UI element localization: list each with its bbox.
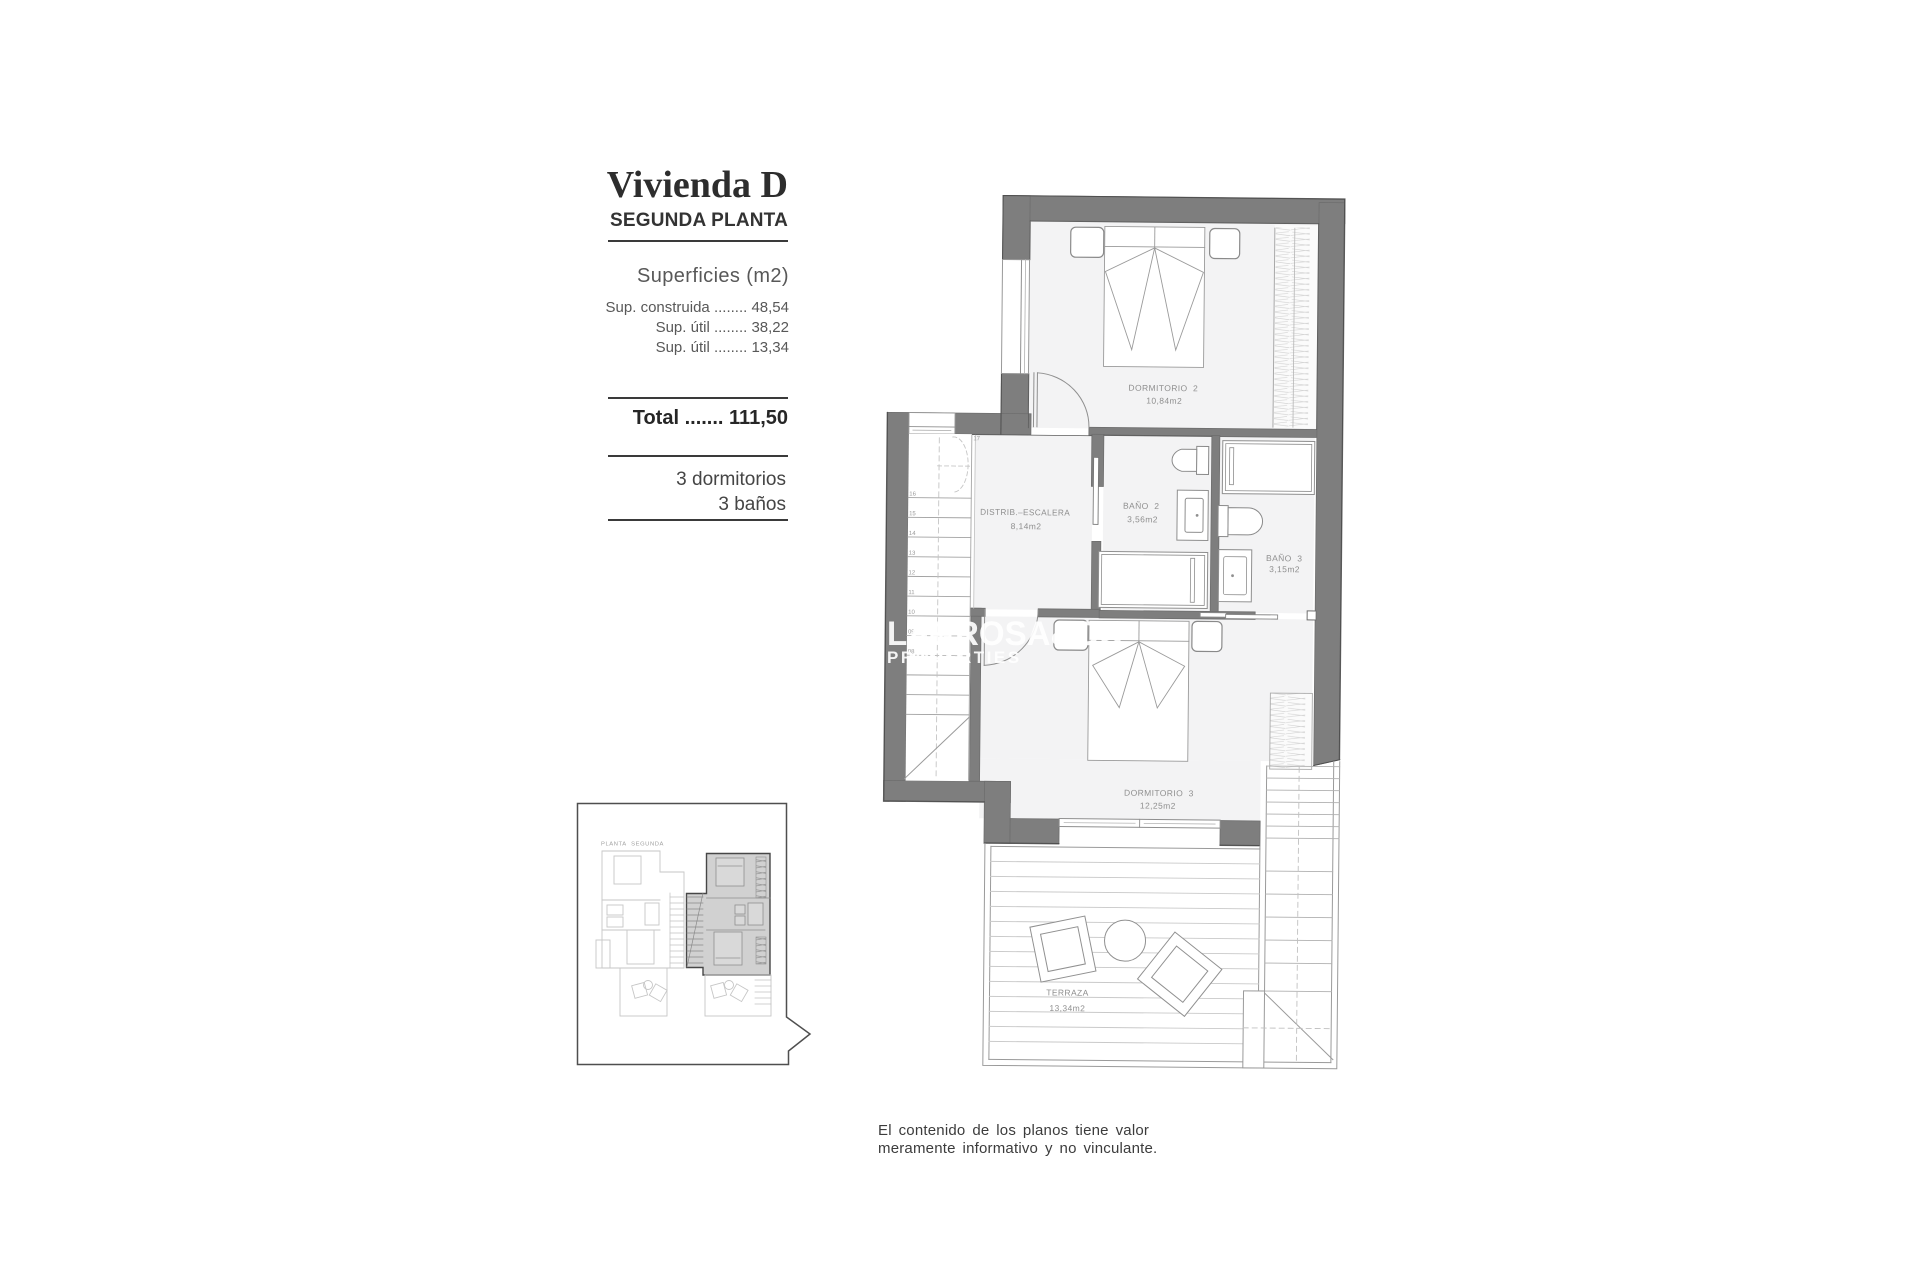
svg-text:8,14m2: 8,14m2 [1011,521,1042,531]
svg-text:10,84m2: 10,84m2 [1146,396,1182,406]
svg-text:11: 11 [908,590,915,596]
svg-text:DORMITORIO 3: DORMITORIO 3 [1124,788,1194,799]
svg-text:3,56m2: 3,56m2 [1127,514,1158,524]
svg-text:PROPERTIES: PROPERTIES [887,648,1022,667]
svg-text:BAÑO 3: BAÑO 3 [1266,553,1302,563]
svg-text:3,15m2: 3,15m2 [1269,564,1300,574]
svg-text:14: 14 [909,531,916,537]
svg-text:15: 15 [909,511,916,517]
svg-text:DISTRIB.–ESCALERA: DISTRIB.–ESCALERA [980,507,1070,518]
svg-text:13: 13 [909,551,916,557]
svg-text:17: 17 [973,436,980,442]
svg-text:TERRAZA: TERRAZA [1046,987,1089,997]
svg-text:DORMITORIO 2: DORMITORIO 2 [1128,383,1198,394]
svg-text:12: 12 [909,570,916,576]
svg-text:PLANTA SEGUNDA: PLANTA SEGUNDA [601,842,664,848]
svg-text:12,25m2: 12,25m2 [1140,801,1176,811]
svg-text:BAÑO 2: BAÑO 2 [1123,501,1159,511]
svg-text:16: 16 [909,492,916,498]
svg-text:13,34m2: 13,34m2 [1049,1003,1085,1013]
